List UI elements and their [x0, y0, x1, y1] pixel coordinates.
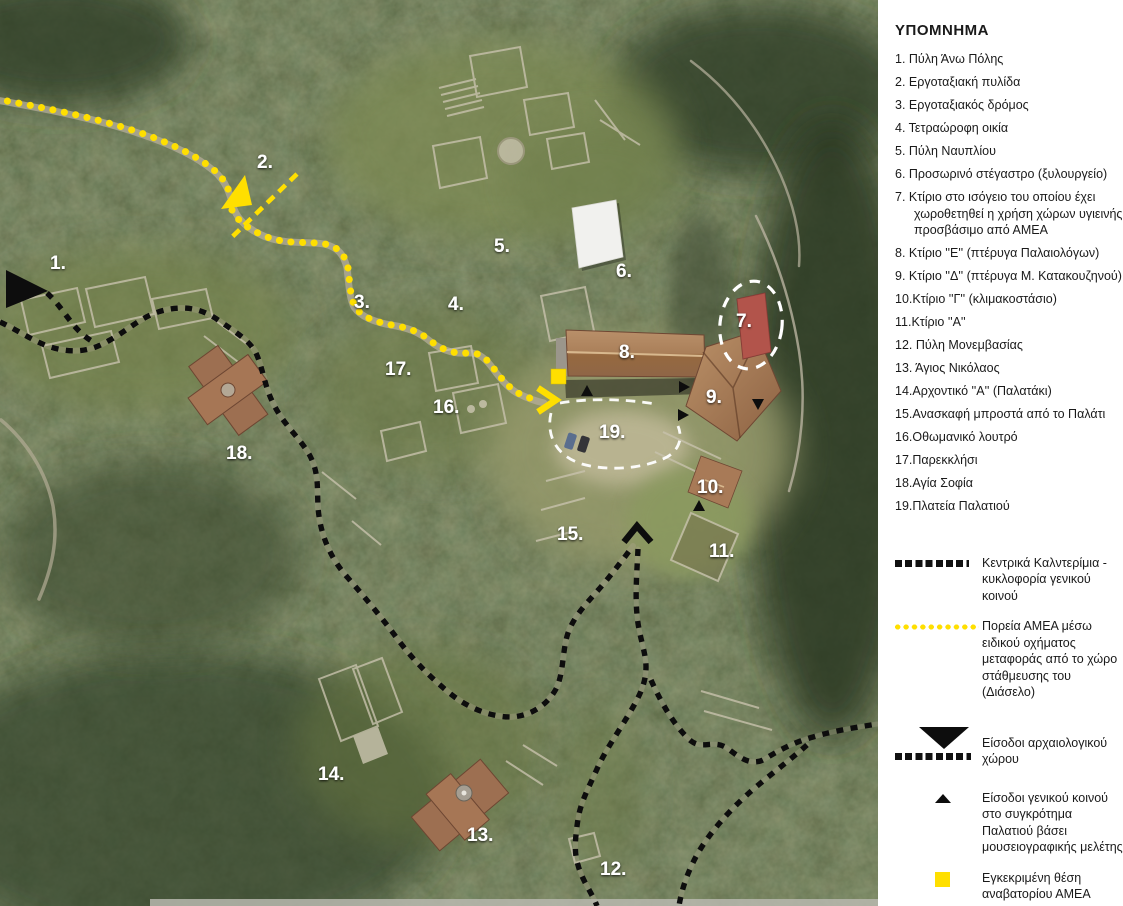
legend-symbol-amea-route: Πορεία ΑΜΕΑ μέσω ειδικού οχήματος μεταφο…: [895, 618, 1123, 701]
legend-item-12: 12. Πύλη Μονεμβασίας: [895, 337, 1123, 354]
map-label-6: 6.: [616, 261, 632, 282]
map-label-5: 5.: [494, 236, 510, 257]
legend-item-19: 19.Πλατεία Παλατιού: [895, 498, 1123, 515]
map-label-16: 16.: [433, 397, 459, 418]
map-label-18: 18.: [226, 443, 252, 464]
photo-edge-strip: [150, 899, 878, 906]
map-label-2: 2.: [257, 152, 273, 173]
legend-symbol-label: Πορεία ΑΜΕΑ μέσω ειδικού οχήματος μεταφο…: [982, 618, 1123, 701]
small-triangle-icon: [935, 794, 951, 803]
threshing-floor-circle: [498, 138, 524, 164]
legend-item-15: 15.Ανασκαφή μπροστά από το Παλάτι: [895, 406, 1123, 423]
legend-item-14: 14.Αρχοντικό ''Α'' (Παλατάκι): [895, 383, 1123, 400]
legend-item-8: 8. Κτίριο ''Ε'' (πτέρυγα Παλαιολόγων): [895, 245, 1123, 262]
legend-item-2: 2. Εργοταξιακή πυλίδα: [895, 74, 1123, 91]
legend-symbol-amea-lift: Εγκεκριμένη θέση αναβατορίου ΑΜΕΑ: [895, 870, 1123, 903]
legend-symbol-kalderimi: Κεντρικά Καλντερίμια - κυκλοφορία γενικο…: [895, 555, 1123, 605]
legend-panel: ΥΠΟΜΝΗΜΑ 1. Πύλη Άνω Πόλης 2. Εργοταξιακ…: [878, 0, 1123, 906]
amea-lift-square-marker: [551, 369, 566, 384]
map-label-11: 11.: [709, 541, 734, 562]
map-label-4: 4.: [448, 294, 464, 315]
legend-item-11: 11.Κτίριο ''Α'': [895, 314, 1123, 331]
legend-item-1: 1. Πύλη Άνω Πόλης: [895, 51, 1123, 68]
aerial-map-svg: 1. 2. 3. 4. 5. 6. 7. 8. 9. 10. 11. 12. 1…: [0, 0, 878, 906]
legend-item-3: 3. Εργοταξιακός δρόμος: [895, 97, 1123, 114]
map-label-14: 14.: [318, 764, 344, 785]
map-label-17: 17.: [385, 359, 411, 380]
legend-item-5: 5. Πύλη Ναυπλίου: [895, 143, 1123, 160]
legend-symbols: Κεντρικά Καλντερίμια - κυκλοφορία γενικο…: [895, 555, 1123, 903]
legend-item-9: 9. Κτίριο ''Δ'' (πτέρυγα Μ. Κατακουζηνού…: [895, 268, 1123, 285]
aerial-map: 1. 2. 3. 4. 5. 6. 7. 8. 9. 10. 11. 12. 1…: [0, 0, 878, 906]
map-label-1: 1.: [50, 253, 66, 274]
map-label-7: 7.: [736, 311, 752, 332]
legend-symbol-label: Είσοδοι γενικού κοινού στο συγκρότημα Πα…: [982, 790, 1123, 856]
legend-symbol-site-entrance: Είσοδοι αρχαιολογικού χώρου: [895, 727, 1123, 768]
legend-item-7: 7. Κτίριο στο ισόγειο του οποίου έχει χω…: [895, 189, 1123, 239]
map-label-9: 9.: [706, 387, 722, 408]
map-label-3: 3.: [354, 292, 370, 313]
black-dashed-line-icon: [895, 560, 969, 567]
map-label-13: 13.: [467, 825, 493, 846]
legend-item-17: 17.Παρεκκλήσι: [895, 452, 1123, 469]
legend-item-13: 13. Άγιος Νικόλαος: [895, 360, 1123, 377]
legend-title: ΥΠΟΜΝΗΜΑ: [895, 22, 1123, 39]
temporary-shelter-6: [572, 200, 623, 268]
legend-item-16: 16.Οθωμανικό λουτρό: [895, 429, 1123, 446]
map-label-8: 8.: [619, 342, 635, 363]
map-label-12: 12.: [600, 859, 626, 880]
yellow-dotted-line-icon: [895, 624, 979, 630]
legend-item-4: 4. Τετραώροφη οικία: [895, 120, 1123, 137]
legend-symbol-label: Εγκεκριμένη θέση αναβατορίου ΑΜΕΑ: [982, 870, 1123, 903]
map-label-10: 10.: [697, 477, 723, 498]
legend-item-6: 6. Προσωρινό στέγαστρο (ξυλουργείο): [895, 166, 1123, 183]
map-label-19: 19.: [599, 422, 625, 443]
legend-item-10: 10.Κτίριο ''Γ'' (κλιμακοστάσιο): [895, 291, 1123, 308]
legend-symbol-label: Είσοδοι αρχαιολογικού χώρου: [982, 735, 1123, 768]
entrance-triangle-icon: [919, 727, 969, 749]
map-label-15: 15.: [557, 524, 583, 545]
legend-symbol-palace-entrance: Είσοδοι γενικού κοινού στο συγκρότημα Πα…: [895, 790, 1123, 856]
entrance-dashed-line-icon: [895, 753, 971, 760]
yellow-square-icon: [935, 872, 950, 887]
site-plan-page: 1. 2. 3. 4. 5. 6. 7. 8. 9. 10. 11. 12. 1…: [0, 0, 1123, 906]
legend-item-18: 18.Αγία Σοφία: [895, 475, 1123, 492]
legend-symbol-label: Κεντρικά Καλντερίμια - κυκλοφορία γενικο…: [982, 555, 1123, 605]
